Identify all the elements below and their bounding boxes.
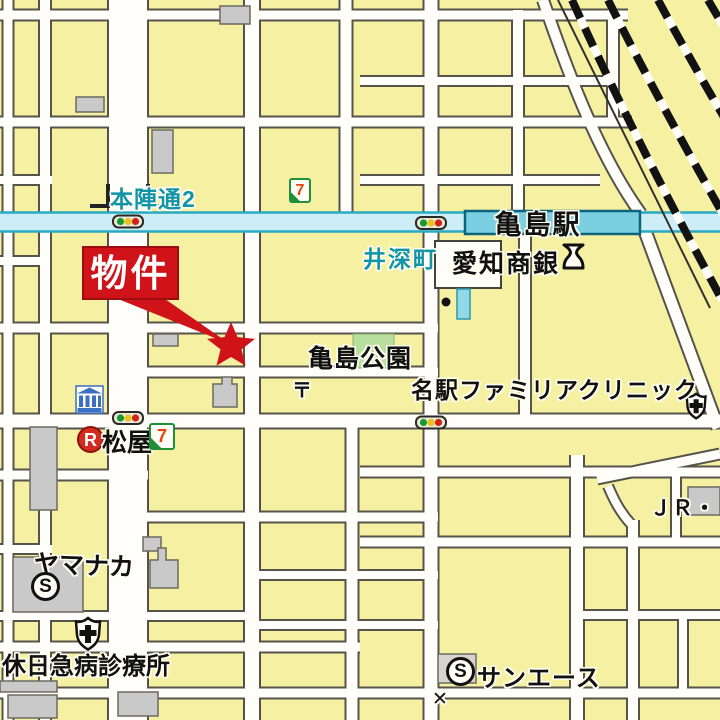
property-banner: 物件 [82, 246, 179, 300]
property-banner-label: 物件 [91, 255, 171, 292]
seven-eleven-icon: 7 [289, 178, 311, 203]
poi-clinic-label: 名駅ファミリアクリニック [411, 371, 698, 405]
area-ibuka-label: 井深町 [363, 240, 438, 274]
label-overlay: 本陣通2 亀島駅 井深町 愛知商銀 物件 亀島公園 〒 名駅ファミリアクリニック… [0, 0, 720, 720]
seven-eleven-digit: 7 [157, 426, 167, 447]
supermarket-badge-letter: S [454, 662, 467, 681]
station-label: 亀島駅 [468, 203, 608, 242]
poi-sun-ace-label: サンエース [477, 658, 601, 693]
restaurant-badge-letter: R [84, 431, 97, 449]
post-office-icon: 〒 [292, 374, 312, 403]
restaurant-badge-icon: R [77, 426, 104, 453]
seven-eleven-icon: 7 [149, 423, 175, 450]
poi-aichi-bank-label: 愛知商銀 [452, 244, 560, 280]
supermarket-badge-icon: S [446, 657, 475, 686]
street-name-honjin-label: 本陣通2 [110, 180, 196, 214]
supermarket-badge-letter: S [39, 577, 52, 596]
map: 本陣通2 亀島駅 井深町 愛知商銀 物件 亀島公園 〒 名駅ファミリアクリニック… [0, 0, 720, 720]
poi-holiday-clinic-label: 休日急病診療所 [2, 646, 170, 681]
seven-eleven-digit: 7 [296, 182, 305, 200]
poi-matsuya-label: 松屋 [102, 423, 152, 459]
x-mark: ✕ [432, 688, 448, 711]
poi-park-label: 亀島公園 [308, 339, 412, 375]
jr-label: ＪＲ・ [650, 492, 716, 522]
supermarket-badge-icon: S [31, 572, 60, 601]
